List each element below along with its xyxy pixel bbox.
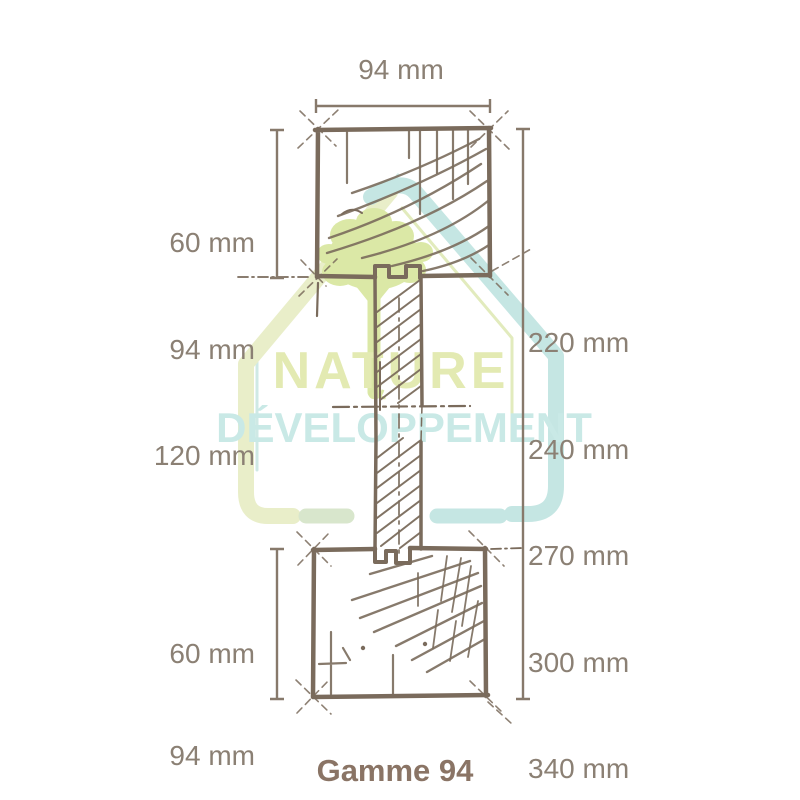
top-width-label: 94 mm xyxy=(301,52,501,88)
diagram-page: NATURE & DÉVELOPPEMENT xyxy=(0,0,800,800)
bottom-flange xyxy=(313,548,488,697)
dimension-line-top-width xyxy=(316,99,490,113)
dimension-line-bottom-flange-height xyxy=(270,549,284,699)
dimension-value: 220 mm xyxy=(528,325,658,361)
dimension-value: 94 mm xyxy=(85,332,255,368)
web xyxy=(333,278,470,556)
dimension-value: 94 mm xyxy=(85,739,255,773)
dimension-line-top-flange-height xyxy=(270,130,284,278)
overall-height-labels: 220 mm 240 mm 270 mm 300 mm 340 mm 360 m… xyxy=(528,254,658,800)
dimension-value: 300 mm xyxy=(528,645,658,681)
top-flange-height-labels: 60 mm 94 mm 120 mm xyxy=(85,154,255,545)
dimension-value: 340 mm xyxy=(528,751,658,787)
dimension-value: 60 mm xyxy=(85,225,255,261)
top-flange xyxy=(315,128,491,278)
dimension-value: 60 mm xyxy=(85,637,255,671)
bottom-flange-height-labels: 60 mm 94 mm 120 mm xyxy=(85,569,255,800)
dimension-value: 120 mm xyxy=(85,438,255,474)
break-line xyxy=(333,406,470,407)
dimension-value: 240 mm xyxy=(528,432,658,468)
dimension-value: 270 mm xyxy=(528,538,658,574)
page-title: Gamme 94 xyxy=(275,752,515,790)
